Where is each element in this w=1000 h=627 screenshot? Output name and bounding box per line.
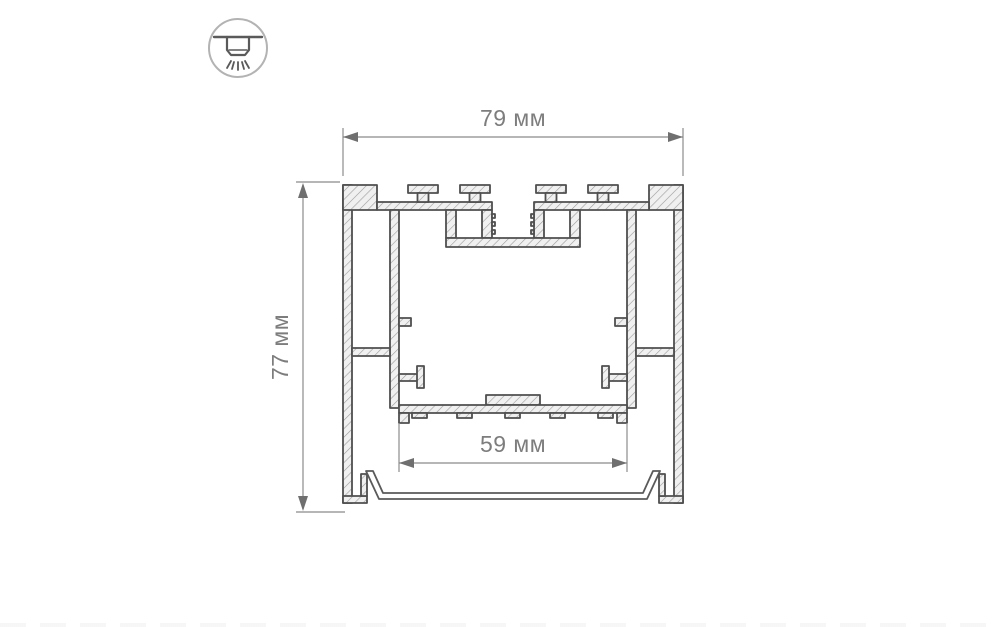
right-inner-wall — [627, 210, 636, 408]
product-drawing-page: 79 мм 77 мм 59 мм — [0, 0, 1000, 627]
central-screw-channel — [446, 210, 580, 247]
dimension-label-width: 79 мм — [480, 105, 546, 131]
cropped-thumbnail-strip — [0, 623, 1000, 627]
dimension-left-height — [296, 182, 345, 512]
t-slot-tabs — [408, 185, 618, 202]
mid-flanges — [399, 366, 627, 388]
dimension-top-width — [343, 128, 683, 176]
dimension-label-inner-width: 59 мм — [480, 431, 546, 457]
right-outer-wall — [674, 185, 683, 503]
left-inner-wall — [390, 210, 399, 408]
dimension-label-height: 77 мм — [267, 314, 293, 380]
diffuser — [366, 471, 660, 499]
ceiling-light-icon — [209, 19, 267, 77]
technical-drawing: 79 мм 77 мм 59 мм — [0, 0, 1000, 627]
left-outer-wall — [343, 185, 352, 503]
led-mounting-plate — [399, 395, 627, 423]
